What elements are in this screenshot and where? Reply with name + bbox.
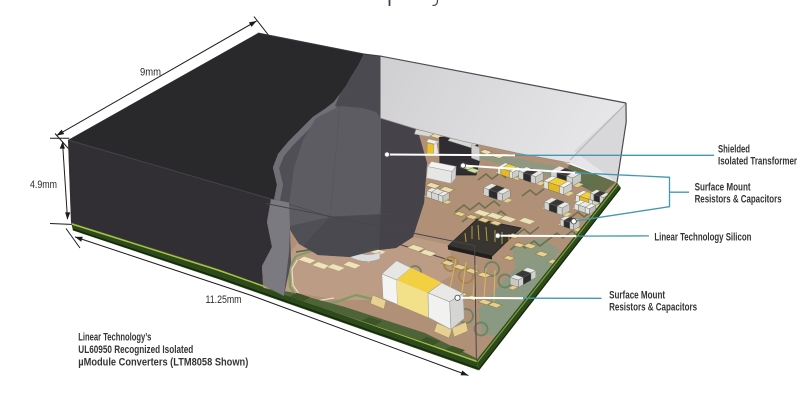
svg-text:Resistors & Capacitors: Resistors & Capacitors xyxy=(609,301,697,313)
svg-text:Shielded: Shielded xyxy=(718,143,750,155)
svg-text:Resistors & Capacitors: Resistors & Capacitors xyxy=(695,193,782,205)
svg-text:11.25mm: 11.25mm xyxy=(206,294,242,306)
svg-text:Linear Technology’s: Linear Technology’s xyxy=(78,332,151,344)
svg-text:Surface Mount: Surface Mount xyxy=(609,289,665,301)
svg-text:Isolated Transformer: Isolated Transformer xyxy=(718,155,798,167)
svg-text:µModule Converters (LTM8058 Sh: µModule Converters (LTM8058 Shown) xyxy=(78,357,248,369)
svg-text:9mm: 9mm xyxy=(140,67,161,79)
svg-text:Surface Mount: Surface Mount xyxy=(695,181,751,193)
svg-text:Linear Technology Silicon: Linear Technology Silicon xyxy=(654,231,751,243)
svg-text:4.9mm: 4.9mm xyxy=(30,179,57,191)
svg-text:UL60950 Recognized Isolated: UL60950 Recognized Isolated xyxy=(78,344,193,356)
